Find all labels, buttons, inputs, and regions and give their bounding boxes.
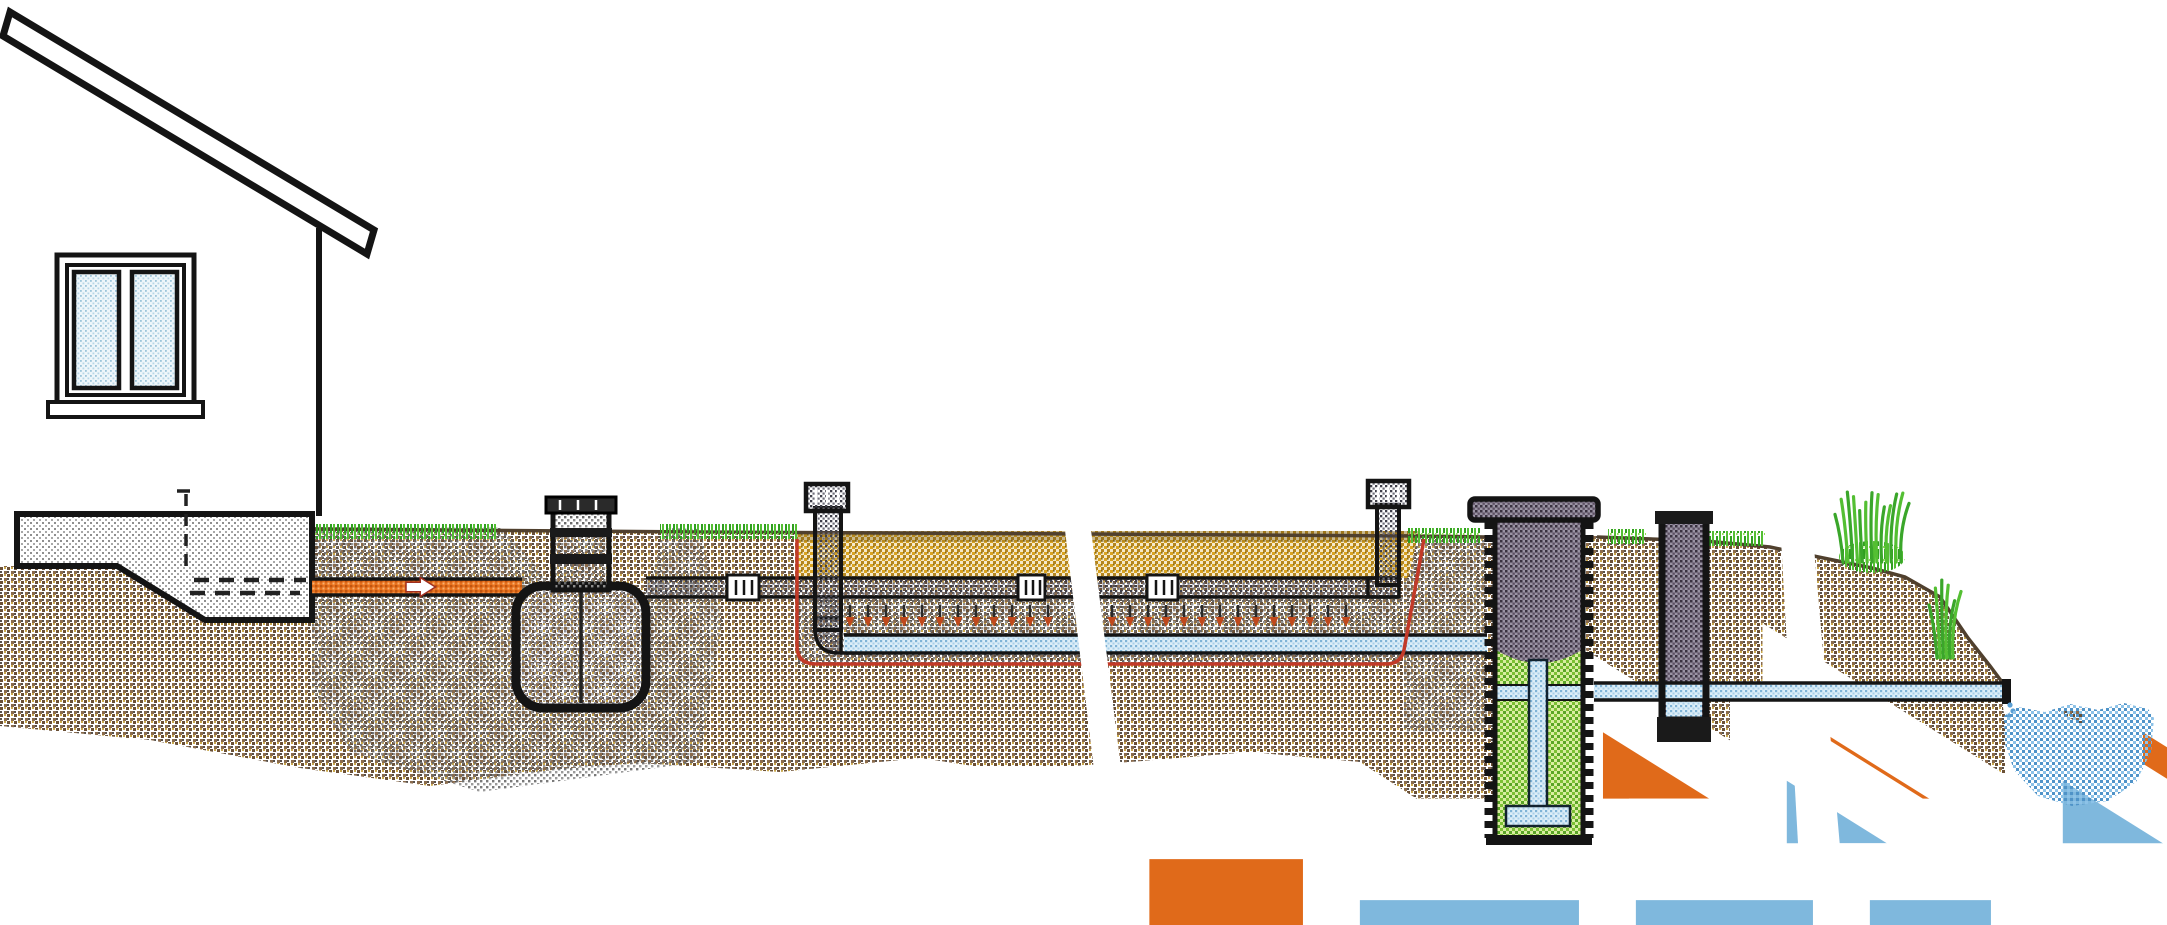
grass-blade (1876, 495, 1878, 562)
septic-riser-band (550, 528, 612, 537)
collection-pipe-body (844, 635, 1487, 653)
grass-blade (1871, 493, 1872, 562)
grass-blade (1835, 514, 1843, 562)
septic-system-cross-section (0, 0, 2167, 925)
pump-tank-lid (1470, 499, 1598, 520)
flush-riser-2-body (1377, 505, 1399, 585)
grass-blade (1901, 503, 1909, 562)
window (48, 255, 203, 417)
flush-riser-1-body (815, 508, 841, 630)
outfall-pipe-body (1594, 683, 2006, 700)
grass-blade (1942, 580, 1944, 658)
grass-blade (1866, 502, 1868, 562)
pipe-coupling (1018, 575, 1045, 600)
septic-riser-lid (546, 497, 616, 513)
roof (3, 12, 374, 254)
pump-sump-tank (1470, 499, 1598, 840)
illustration-canvas (0, 0, 2167, 925)
grass-strip (1408, 528, 1480, 543)
outlet-tee-base (1506, 806, 1570, 826)
pump-tank-dark-interior (1496, 518, 1582, 663)
grass-strip (1608, 529, 1646, 544)
grass-strip (1700, 531, 1765, 546)
pipe-coupling (727, 575, 759, 600)
inspection-chamber-cap (1655, 511, 1713, 524)
inspection-chamber-water (1666, 700, 1702, 718)
outfall-pipe-end-cap (2002, 679, 2011, 704)
window-sill (48, 402, 203, 417)
window-pane-right (132, 272, 177, 388)
inspection-chamber-base (1657, 717, 1711, 742)
septic-riser-band (550, 554, 612, 564)
outlet-tee-vertical (1529, 660, 1547, 812)
septic-riser (553, 510, 609, 590)
septic-tank (516, 497, 646, 708)
sewer-pipe (312, 578, 522, 597)
grass-strip (660, 524, 797, 539)
window-pane-left (74, 272, 119, 388)
grass-strip (312, 524, 497, 539)
pipe-coupling (1147, 575, 1178, 600)
outfall-pipe (1594, 679, 2011, 704)
